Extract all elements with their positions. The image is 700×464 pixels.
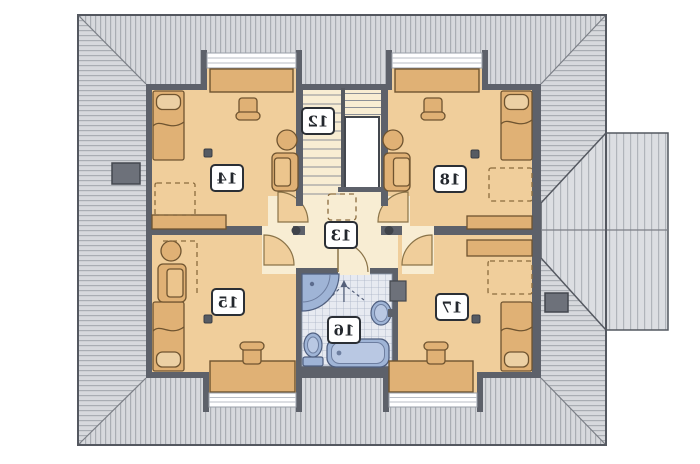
dresser-room-14	[152, 215, 226, 229]
dormer-bottom-right	[383, 361, 483, 412]
chair-room-18	[421, 98, 445, 120]
room-label-16: 16	[328, 317, 360, 343]
desk-room-14	[210, 69, 293, 92]
window-bottom-left	[209, 393, 296, 407]
dormer-top-right	[386, 50, 488, 92]
dresser-room-18	[467, 216, 532, 229]
armchair-room-18	[384, 153, 410, 191]
roof-top-face	[78, 15, 606, 84]
window-top-left	[207, 53, 296, 68]
socket-room-15	[204, 315, 212, 323]
armchair-room-14	[272, 153, 298, 191]
chair-room-14	[236, 98, 260, 120]
desk-room-17	[389, 361, 473, 392]
room-label-14-text: 14	[217, 170, 238, 188]
chimney-right	[545, 293, 568, 312]
bed-room-14	[153, 91, 184, 160]
room-label-15-text: 15	[218, 294, 239, 312]
round-table-room-14	[277, 130, 297, 150]
stair-void-bottom-wall	[338, 187, 381, 192]
socket-room-17	[472, 315, 480, 323]
bathroom-door-opening	[338, 268, 370, 275]
window-top-right	[392, 53, 482, 68]
room-label-16-text: 16	[334, 322, 355, 340]
room-label-14: 14	[211, 165, 243, 191]
room-label-18-text: 18	[440, 171, 461, 189]
round-table-room-18	[383, 130, 403, 150]
room-label-13: 13	[325, 222, 357, 248]
round-table-room-15	[161, 241, 181, 261]
room-label-17-text: 17	[442, 299, 463, 317]
chimney-left	[112, 163, 140, 184]
room-label-13-text: 13	[331, 227, 352, 245]
stair-void	[345, 117, 379, 189]
room-label-12-text: 12	[308, 113, 329, 131]
socket-room-14	[204, 149, 212, 157]
desk-room-15	[210, 361, 295, 392]
desk-room-18	[395, 69, 479, 92]
wall-post-left	[292, 226, 301, 235]
dormer-top-left	[201, 50, 302, 92]
bed-room-15	[153, 302, 184, 371]
vent-duct	[390, 281, 406, 301]
roof-bottom-face	[78, 378, 606, 445]
room-label-17: 17	[436, 294, 468, 320]
room-label-15: 15	[212, 289, 244, 315]
chair-room-15	[240, 342, 264, 364]
dormer-bottom-left	[203, 361, 302, 412]
dresser-room-17	[467, 240, 532, 256]
roof-left-face	[78, 15, 146, 445]
floor-plan-canvas: 12 13 14 15 16 17 18	[0, 0, 700, 464]
chair-room-17	[424, 342, 448, 364]
toilet	[303, 333, 323, 366]
socket-room-18	[471, 150, 479, 158]
room-label-12: 12	[302, 108, 334, 134]
bed-room-17	[501, 302, 532, 371]
shower-drain	[310, 282, 314, 286]
wall-post-right	[385, 226, 394, 235]
bed-room-18	[501, 91, 532, 160]
room-label-18: 18	[434, 166, 466, 192]
window-bottom-right	[389, 393, 477, 407]
armchair-room-15	[158, 264, 186, 302]
floor-plan-page: 12 13 14 15 16 17 18	[0, 0, 700, 464]
